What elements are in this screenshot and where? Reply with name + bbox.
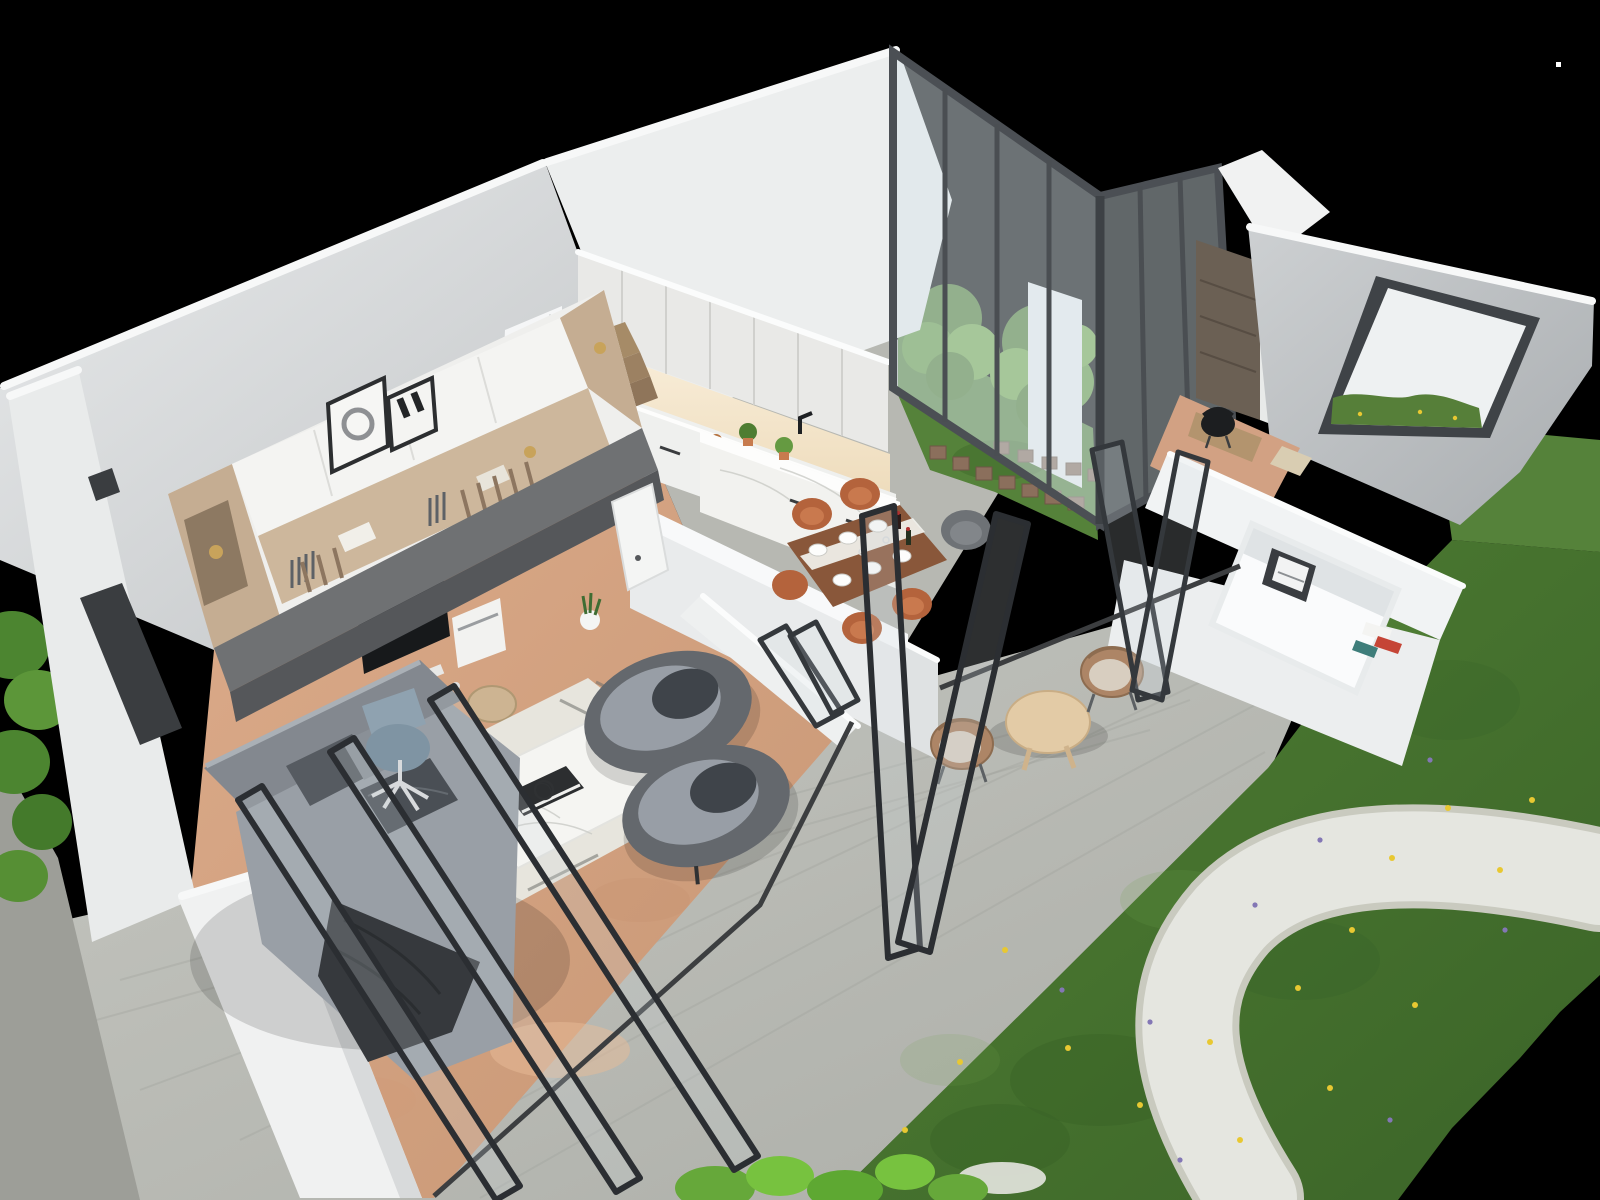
render-canvas xyxy=(0,0,1600,1200)
render-artifact-dot xyxy=(1556,62,1561,67)
gold-vase-2 xyxy=(594,342,606,354)
door-handle xyxy=(635,555,641,561)
round-timber-table xyxy=(1006,691,1090,753)
gold-vase xyxy=(209,545,223,559)
grey-tub-chair xyxy=(941,510,991,550)
architectural-render xyxy=(0,0,1600,1200)
